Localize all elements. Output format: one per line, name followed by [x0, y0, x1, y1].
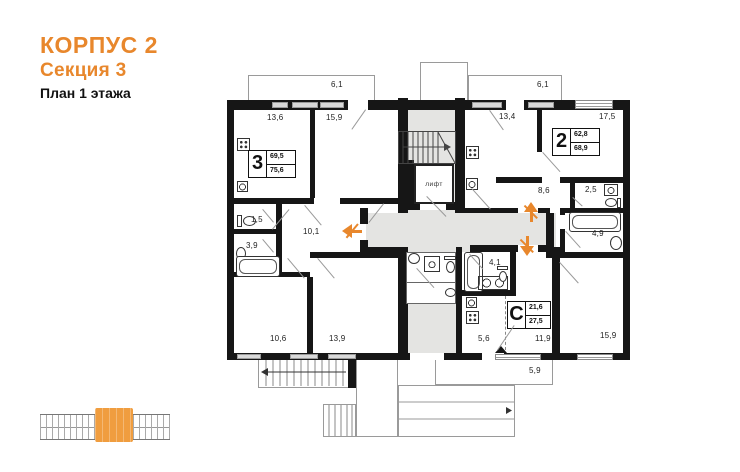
zone-divider-dashed	[505, 296, 506, 350]
entrance-stairs	[258, 357, 352, 388]
entrance-arrow-up-icon	[519, 200, 543, 224]
door-swing	[304, 205, 321, 226]
minimap-current-section	[95, 408, 133, 442]
room-area-label: 10,6	[270, 334, 286, 343]
room-area-label: 4,1	[489, 258, 501, 267]
toilet-icon	[499, 271, 507, 282]
bathtub-icon	[236, 256, 280, 277]
section-title: Секция 3	[40, 60, 127, 82]
apartment-info-3room: 3 69,5 75,6	[248, 150, 296, 178]
wall	[234, 229, 282, 234]
wall	[310, 252, 398, 258]
wall	[455, 98, 465, 213]
window	[320, 102, 344, 108]
entrance-arrow-left-icon	[340, 219, 364, 243]
building-title: КОРПУС 2	[40, 32, 158, 59]
floor-title: План 1 этажа	[40, 85, 131, 101]
washer-icon	[604, 184, 618, 196]
window	[328, 354, 356, 359]
room-area-label: 13,6	[267, 113, 283, 122]
sink-unit-icon	[466, 297, 477, 308]
window	[472, 102, 502, 108]
toilet-icon	[605, 198, 617, 207]
room-area-label: 5,9	[529, 366, 541, 375]
room-area-label: 13,9	[329, 334, 345, 343]
total-area-value: 27,5	[526, 316, 550, 329]
wall	[310, 110, 315, 198]
toilet-icon	[617, 198, 621, 208]
washer-icon	[424, 256, 440, 272]
window	[272, 102, 288, 108]
room-area-label: 5,6	[478, 334, 490, 343]
window	[577, 354, 613, 360]
room-area-label: 1,5	[251, 215, 263, 224]
door-swing	[565, 231, 580, 248]
wall	[570, 183, 575, 208]
living-area-value: 62,8	[571, 129, 599, 143]
apartment-type-label: С	[508, 302, 526, 328]
balcony-left	[248, 75, 375, 102]
room-area-label: 10,1	[303, 227, 319, 236]
wall	[623, 100, 630, 360]
stove-icon	[466, 311, 479, 324]
sink-icon	[610, 236, 622, 250]
window	[528, 102, 554, 108]
floor-plan-page: КОРПУС 2 Секция 3 План 1 этажа	[0, 0, 740, 472]
room-area-label: 13,4	[499, 112, 515, 121]
bath-door-gap	[560, 215, 565, 229]
door-swing	[317, 258, 334, 279]
stove-icon	[466, 146, 479, 159]
door-swing	[471, 188, 490, 209]
sink-unit-icon	[237, 181, 248, 192]
entrance-path	[356, 360, 398, 437]
living-area-value: 69,5	[267, 151, 295, 165]
room-area-label: 15,9	[326, 113, 342, 122]
elevator: лифт	[414, 164, 454, 204]
room-area-label: 2,5	[585, 185, 597, 194]
wall	[406, 160, 414, 206]
door-swing	[351, 109, 366, 129]
wall	[552, 247, 560, 360]
window	[290, 354, 318, 359]
entrance-ramp	[398, 385, 515, 437]
toilet-icon	[445, 288, 456, 297]
sink-icon	[408, 253, 420, 264]
elevator-label: лифт	[425, 181, 443, 188]
apartment-type-label: 2	[553, 129, 571, 155]
room-area-label: 6,1	[537, 80, 549, 89]
room-area-label: 4,9	[592, 229, 604, 238]
room-area-label: 11,9	[535, 334, 551, 343]
living-area-value: 21,6	[526, 302, 550, 316]
balcony-door-gap	[506, 100, 524, 110]
building-minimap	[38, 406, 172, 444]
toilet-icon	[446, 261, 455, 273]
toilet-icon	[444, 256, 456, 260]
window	[575, 100, 613, 109]
window	[292, 102, 318, 108]
wall	[496, 177, 542, 183]
wall	[546, 252, 623, 258]
wall	[538, 245, 550, 252]
wall	[537, 110, 542, 152]
wall	[455, 208, 520, 213]
room-area-label: 15,9	[600, 331, 616, 340]
minimap-section	[133, 414, 170, 440]
door-swing	[262, 209, 274, 223]
total-area-value: 68,9	[571, 143, 599, 156]
wall	[227, 100, 234, 360]
top-projection	[420, 62, 468, 102]
toilet-icon	[237, 215, 242, 227]
room-area-label: 8,6	[538, 186, 550, 195]
window	[237, 354, 261, 359]
wall	[307, 277, 313, 353]
wall	[234, 198, 314, 204]
door-swing	[559, 262, 578, 283]
room-area-label: 17,5	[599, 112, 615, 121]
side-stairs	[323, 404, 356, 437]
entrance-arrow-down-icon	[515, 234, 539, 258]
minimap-section	[40, 414, 95, 440]
total-area-value: 75,6	[267, 165, 295, 178]
window	[495, 354, 541, 360]
room-area-label: 6,1	[331, 80, 343, 89]
door-swing	[262, 239, 274, 253]
stairwell-stairs	[398, 131, 456, 164]
entrance-door-gap	[410, 353, 444, 360]
apartment-info-2room: 2 62,8 68,9	[552, 128, 600, 156]
wall	[340, 198, 398, 204]
apartment-type-label: 3	[249, 151, 267, 177]
room-area-label: 3,9	[246, 241, 258, 250]
wall	[348, 356, 356, 388]
wall	[456, 247, 462, 360]
